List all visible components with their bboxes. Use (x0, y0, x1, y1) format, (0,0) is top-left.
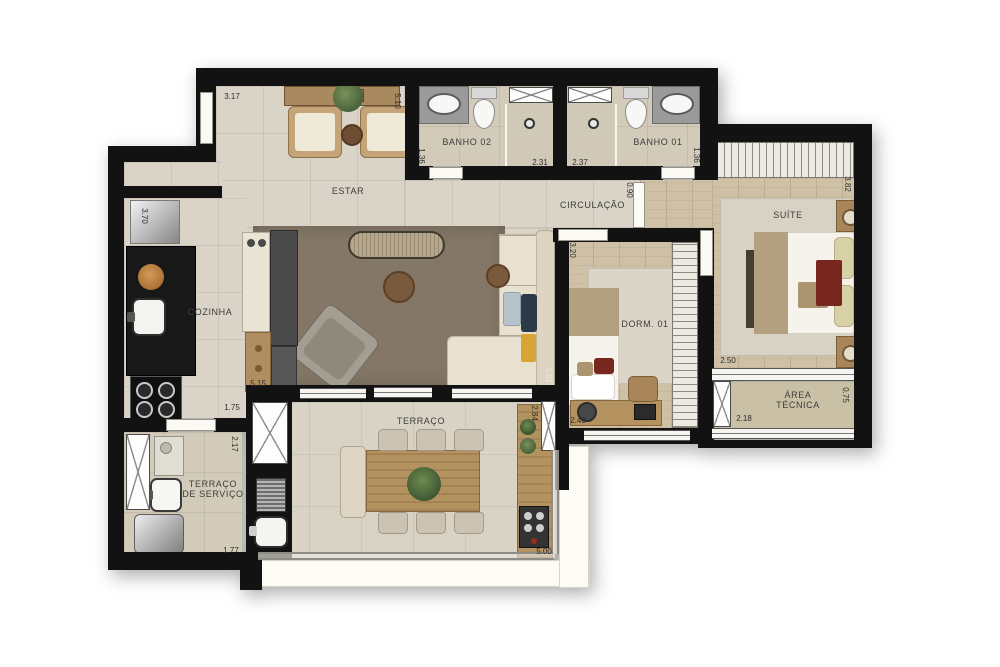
dim-suite-width: 2.50 (713, 356, 743, 366)
room-label-banho02: BANHO 02 (427, 137, 507, 147)
room-label-area-tecnica-line2: TÉCNICA (758, 400, 838, 410)
dim-banho01-side: 1.36 (691, 140, 701, 170)
dim-estar-top: 3.17 (217, 92, 247, 102)
room-label-terraco-servico: TERRAÇO DE SERVIÇO (168, 479, 258, 499)
dim-dorm-width: 2.40 (563, 416, 593, 426)
room-label-area-tecnica-line1: ÁREA (758, 390, 838, 400)
dim-estar-side: 5.10 (392, 86, 402, 116)
dim-terraco-side: 2.84 (529, 398, 539, 428)
room-label-suite: SUÍTE (748, 210, 828, 220)
dim-servico-width: 1.77 (216, 546, 246, 556)
dim-estar-terr-side: 3.61 (543, 360, 553, 390)
room-label-area-tecnica: ÁREA TÉCNICA (758, 390, 838, 410)
dim-banho02-side: 1.36 (416, 141, 426, 171)
room-label-dorm01: DORM. 01 (605, 319, 685, 329)
dim-areatec-width: 2.18 (729, 414, 759, 424)
dim-suite-side: 3.82 (842, 169, 852, 199)
dim-circ-door: 0.90 (624, 175, 634, 205)
room-label-terraco-servico-line1: TERRAÇO (168, 479, 258, 489)
dim-terraco-width: 5.00 (529, 547, 559, 557)
room-label-circulacao: CIRCULAÇÃO (550, 200, 635, 210)
dim-island-length: 5.15 (243, 379, 273, 389)
floor-plan: ESTAR COZINHA BANHO 02 BANHO 01 CIRCULAÇ… (0, 0, 1000, 667)
room-label-terraco: TERRAÇO (381, 416, 461, 426)
dim-dorm-side: 3.20 (567, 235, 577, 265)
dim-areatec-side: 0.75 (840, 380, 850, 410)
room-label-cozinha: COZINHA (180, 307, 240, 317)
dim-banho01-width: 2.37 (565, 158, 595, 168)
labels-layer: ESTAR COZINHA BANHO 02 BANHO 01 CIRCULAÇ… (0, 0, 1000, 667)
room-label-terraco-servico-line2: DE SERVIÇO (168, 489, 258, 499)
room-label-estar: ESTAR (318, 186, 378, 196)
dim-cozinha-side: 3.70 (139, 201, 149, 231)
dim-banho02-width: 2.31 (525, 158, 555, 168)
room-label-banho01: BANHO 01 (618, 137, 698, 147)
dim-servico-side: 2.17 (229, 429, 239, 459)
dim-cozinha-width: 1.75 (217, 403, 247, 413)
